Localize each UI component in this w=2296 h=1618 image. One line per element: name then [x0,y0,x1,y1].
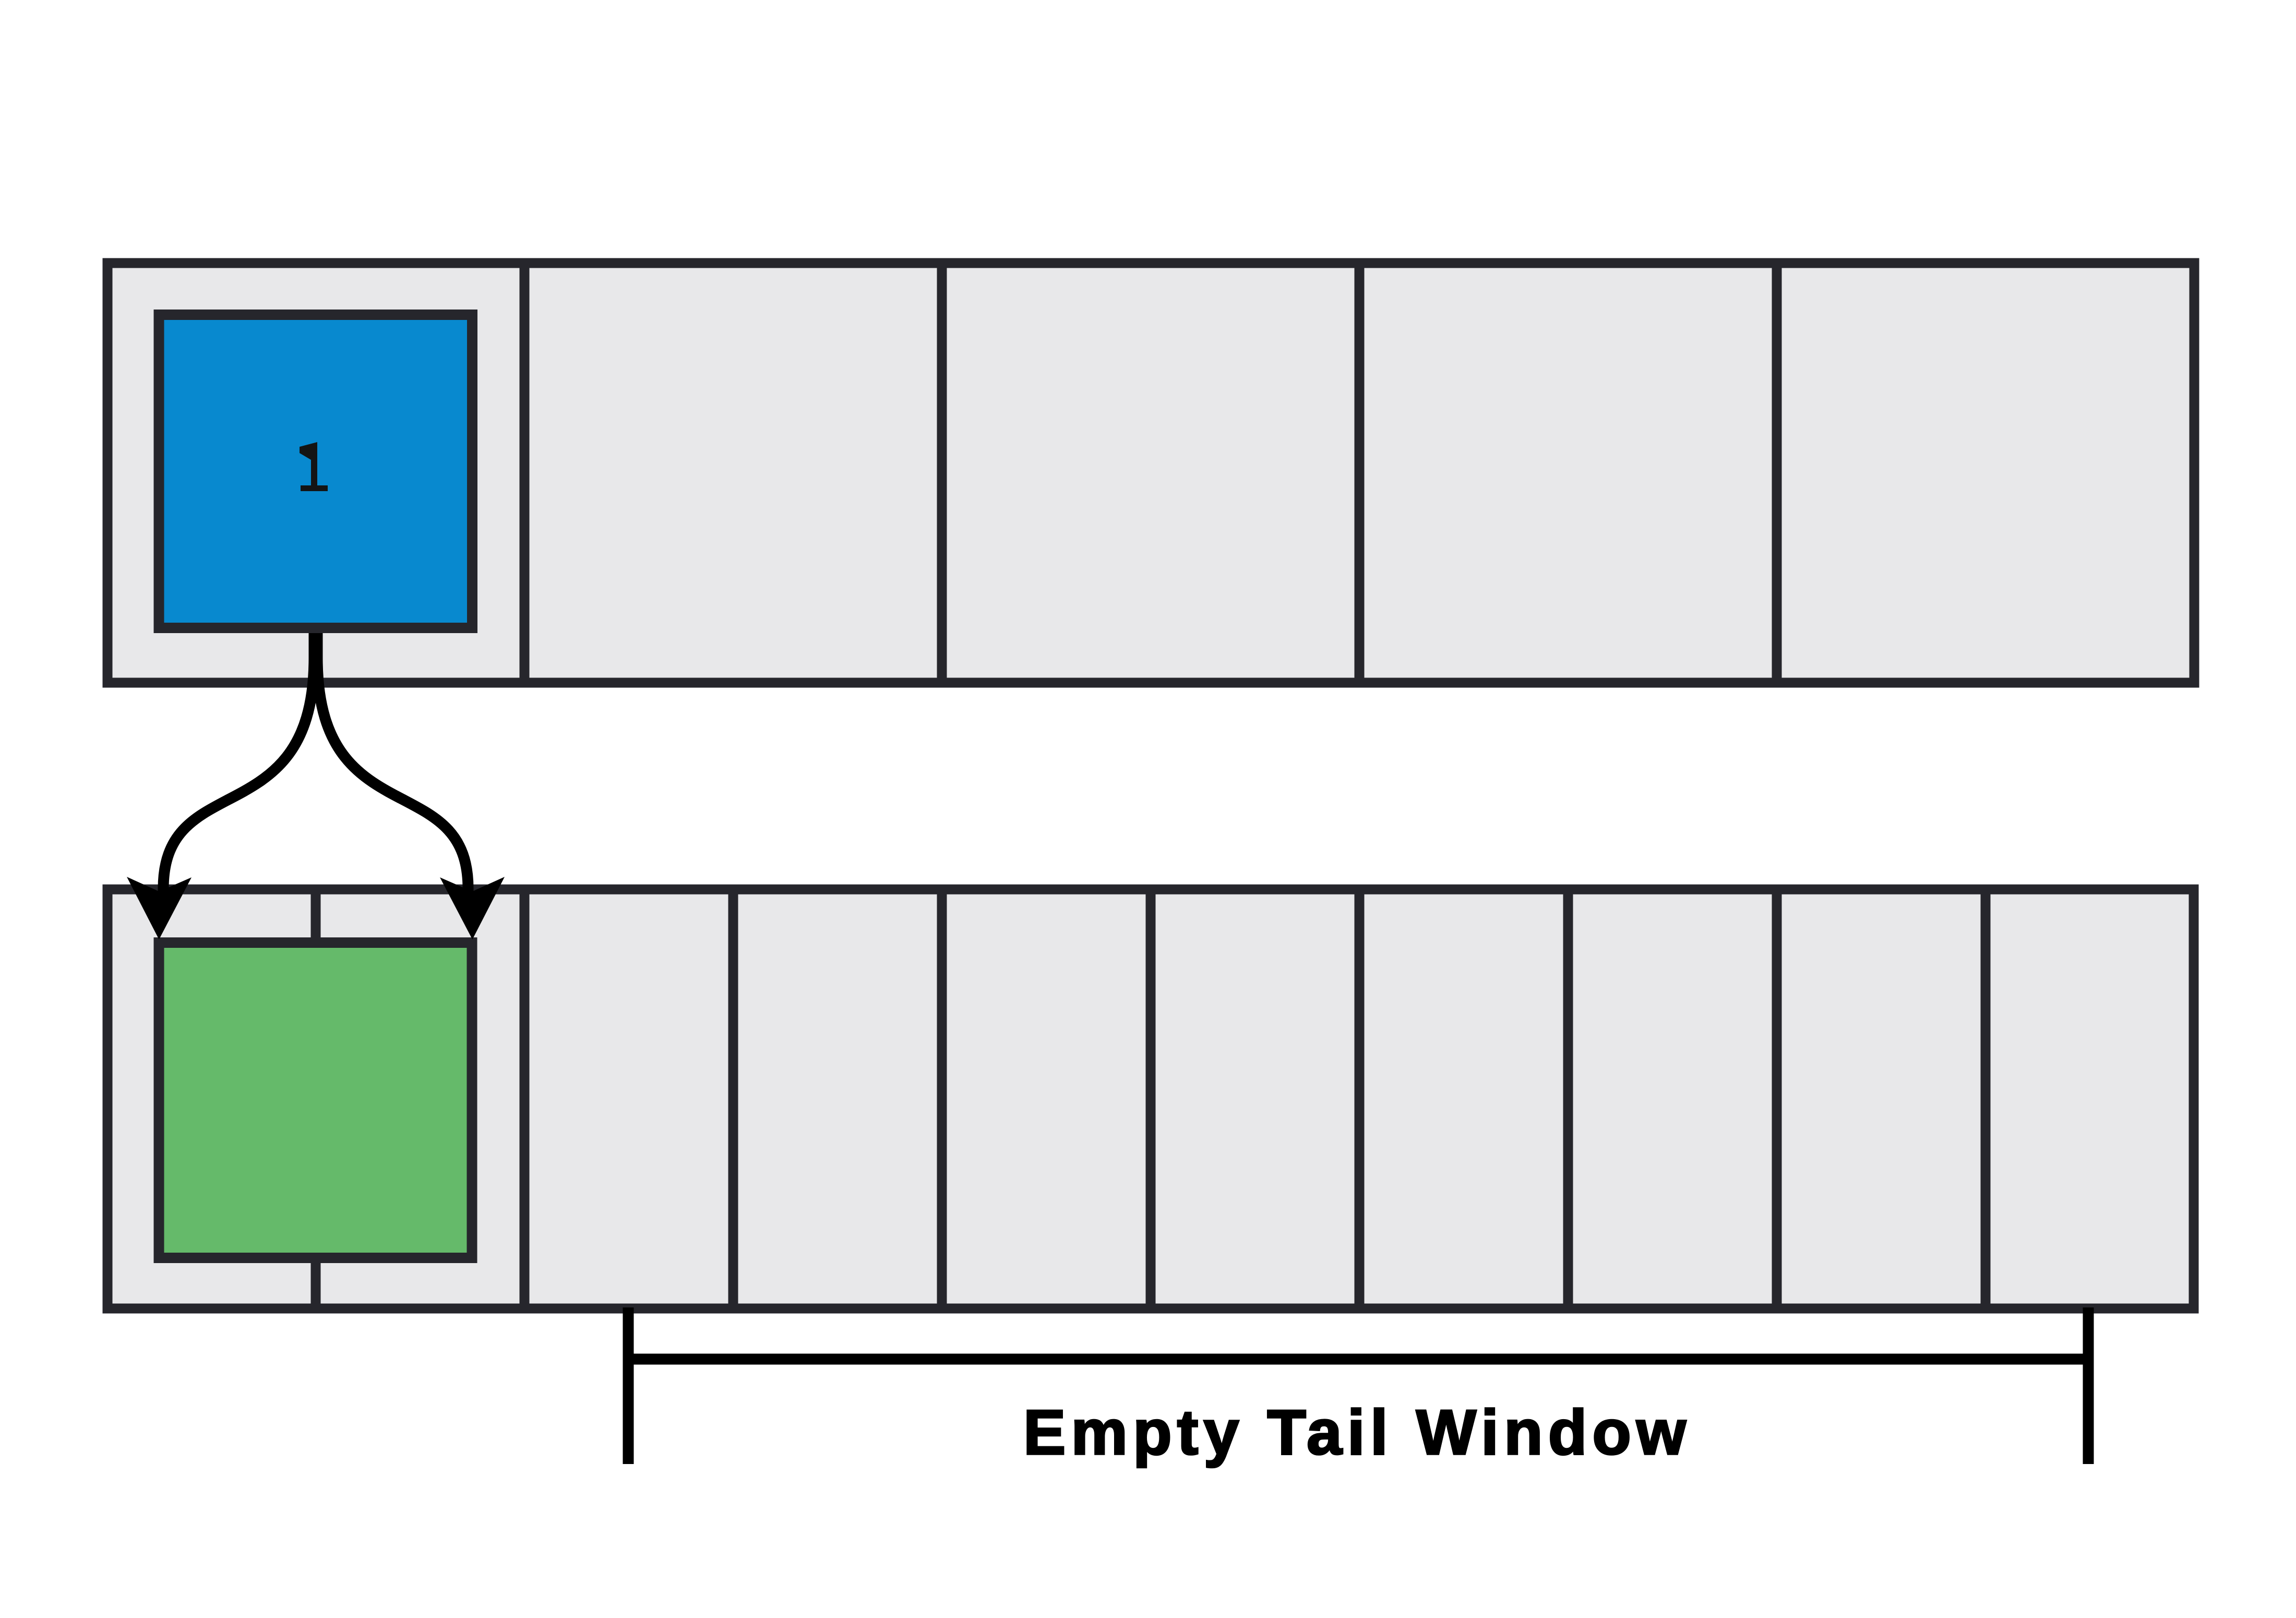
svg-text:Empty Tail Window: Empty Tail Window [1023,1397,1691,1468]
